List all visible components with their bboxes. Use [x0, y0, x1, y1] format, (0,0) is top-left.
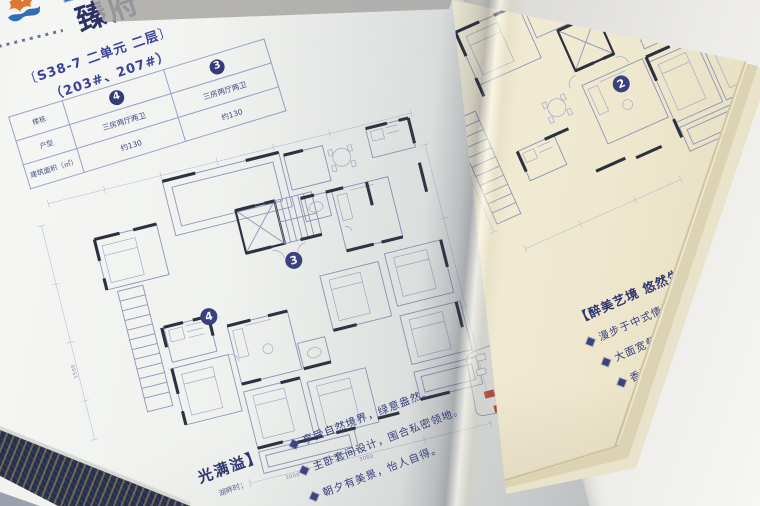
- diamond-bullet-icon: [310, 492, 319, 501]
- diamond-bullet-icon: [617, 378, 626, 387]
- unit-3-badge: 3: [208, 57, 227, 76]
- diamond-bullet-icon: [586, 337, 595, 346]
- diamond-bullet-icon: [290, 440, 299, 449]
- diamond-bullet-icon: [602, 358, 611, 367]
- diamond-bullet-icon: [300, 466, 309, 475]
- brand-seal-icon: [62, 0, 73, 3]
- photo-scene: 臻府 〔S38-7 二单元 二层〕 （203#、207#） 楼栋 4 3 户型 …: [0, 0, 760, 506]
- unit-4-badge: 4: [107, 88, 126, 107]
